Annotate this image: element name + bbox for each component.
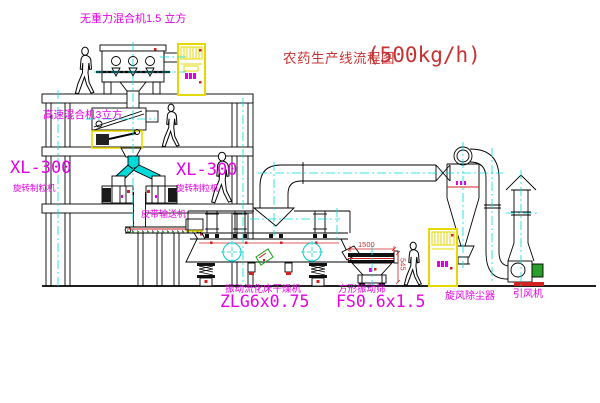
dimension-screen-height: 545 <box>399 258 407 271</box>
control-cabinet-1 <box>178 44 205 95</box>
label-screen-model: FS0.6x1.5 <box>336 294 425 311</box>
label-cyclone: 旋风除尘器 <box>445 292 495 302</box>
diagram-title-capacity: (500kg/h) <box>367 45 481 66</box>
label-granulator-right-model: XL-300 <box>176 162 237 179</box>
conveyor-support-column <box>174 233 179 286</box>
hood-clamps <box>205 234 327 238</box>
feeder-box <box>186 219 203 230</box>
dimension-screen-length: 1500 <box>358 241 375 249</box>
vibrating-screen <box>348 251 398 286</box>
person-figure-2 <box>162 104 179 147</box>
fan-base <box>514 282 544 286</box>
cabinet-buttons <box>437 261 440 267</box>
indicator-dot <box>154 48 157 51</box>
conveyor-support-column <box>138 233 143 286</box>
conveyor-support-column <box>157 233 162 286</box>
gravity-free-mixer <box>96 45 180 116</box>
vibration-mount <box>197 263 215 286</box>
fan-motor <box>532 264 543 277</box>
cyclone-to-fan-pipe <box>470 149 512 279</box>
label-dryer-model: ZLG6x0.75 <box>220 294 309 311</box>
granulator-motor <box>102 188 111 202</box>
granulator-right <box>146 176 177 203</box>
label-gravity-free-mixer: 无重力混合机1.5 立方 <box>80 14 186 25</box>
flow-diagram-canvas: 农药生产线流程图 (500kg/h) 无重力混合机1.5 立方 高速混合机3立方… <box>0 0 600 403</box>
induced-draft-fan <box>508 261 544 286</box>
exhaust-duct <box>254 162 450 226</box>
label-belt-conveyor: 皮带输送机 <box>141 210 186 219</box>
person-figure-1 <box>75 47 93 94</box>
floor-slab-3 <box>42 94 253 103</box>
mixer-motor <box>96 134 109 145</box>
vibration-mount <box>309 263 327 286</box>
label-granulator-left-name: 旋转制粒机 <box>13 184 56 193</box>
cabinet-buttons <box>185 73 188 79</box>
control-cabinet-2 <box>429 229 457 286</box>
label-high-speed-mixer: 高速混合机3立方 <box>43 110 122 121</box>
label-granulator-left-model: XL-300 <box>10 160 71 177</box>
granulator-left <box>102 176 133 203</box>
left-wall-column <box>65 94 70 286</box>
label-fan: 引风机 <box>513 290 543 300</box>
label-granulator-right-name: 旋转制粒机 <box>176 184 219 193</box>
